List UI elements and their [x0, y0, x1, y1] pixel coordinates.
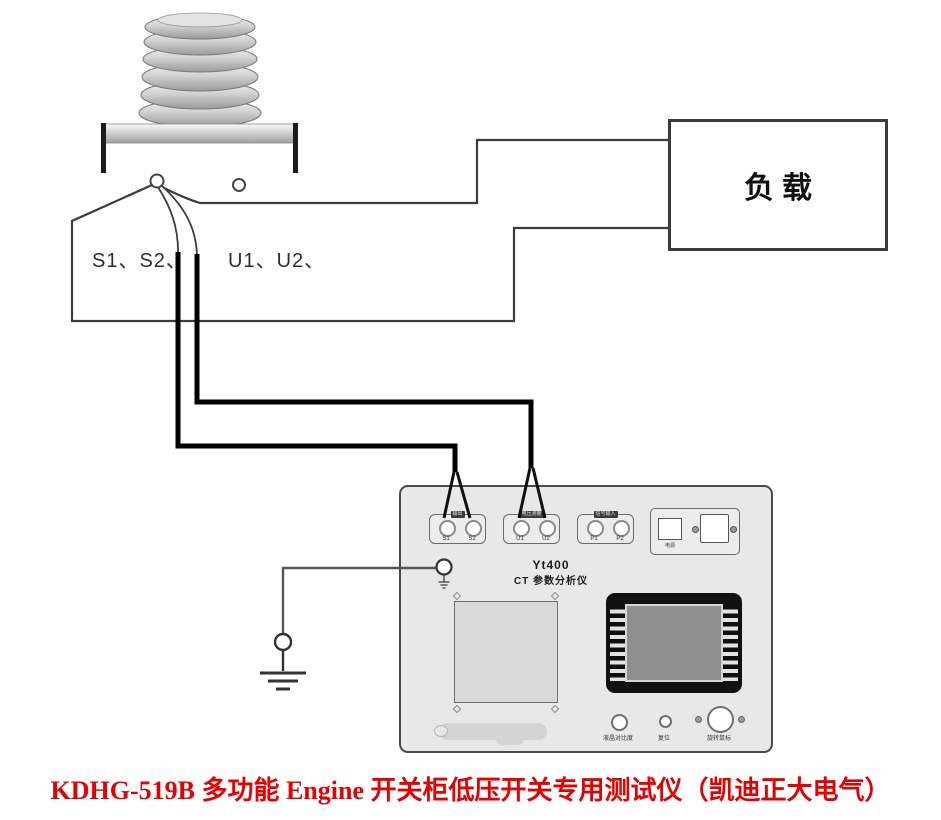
terminal-group-u: 电压测量 U1 U2 [503, 514, 560, 544]
vent-stripes-right [721, 605, 738, 681]
terminal-s1-label: S1 [437, 536, 455, 542]
measurement-wire-u [197, 254, 531, 468]
terminal-u1-label: U1 [511, 536, 529, 542]
secondary-terminals-label: S1、S2、 [92, 244, 187, 273]
contrast-knob [611, 714, 628, 731]
primary-loop-wire [72, 140, 668, 321]
ct-analyzer-panel: 输出 S1 S2 电压测量 U1 U2 信号输入 P1 P2 电源 [399, 485, 773, 753]
load-box: 负载 [668, 119, 888, 251]
power-socket-icon [700, 514, 729, 543]
terminal-p1 [587, 520, 604, 537]
keypad-area [454, 601, 558, 703]
terminal-group-p-tag: 信号输入 [593, 511, 617, 518]
erased-label-smudge [496, 733, 524, 745]
caption-text: KDHG-519B 多功能 Engine 开关柜低压开关专用测试仪（凯迪正大电气… [0, 770, 941, 807]
screw-icon [695, 716, 702, 723]
terminal-group-s: 输出 S1 S2 [429, 514, 486, 544]
lcd-display [606, 593, 742, 693]
terminal-u2-label: U2 [537, 536, 555, 542]
terminal-u1 [513, 520, 530, 537]
terminal-s2-label: S2 [463, 536, 481, 542]
instrument-model: Yt400 [461, 558, 641, 572]
bushing-insulator-icon [101, 13, 298, 173]
ground-icon [260, 673, 306, 689]
reset-button [659, 715, 672, 728]
terminal-group-p: 信号输入 P1 P2 [577, 514, 634, 544]
screw-icon [453, 705, 461, 713]
terminal-group-u-tag: 电压测量 [519, 511, 543, 518]
power-section: 电源 [650, 508, 740, 555]
screw-icon [453, 592, 461, 600]
rotary-mouse-label: 旋转鼠标 [687, 733, 751, 742]
terminal-u2 [539, 520, 556, 537]
power-switch-icon [658, 518, 682, 540]
terminal-s1 [439, 520, 456, 537]
screw-icon [551, 705, 559, 713]
terminal-p2 [613, 520, 630, 537]
power-label: 电源 [654, 542, 686, 549]
ct-terminal-stud [233, 179, 245, 191]
terminal-s2 [465, 520, 482, 537]
wiring-diagram: 负载 S1、S2、 U1、U2、 输出 S1 S2 电压测量 U1 U2 信号输… [0, 0, 941, 820]
screw-icon [692, 526, 699, 533]
instrument-title: CT 参数分析仪 [461, 572, 641, 587]
screw-icon [738, 716, 745, 723]
voltage-terminals-label: U1、U2、 [228, 244, 325, 273]
screw-icon [730, 526, 737, 533]
lcd-screen [625, 604, 723, 682]
contrast-label: 液晶对比度 [586, 733, 650, 742]
screw-icon [551, 592, 559, 600]
rotary-mouse-knob [707, 706, 734, 733]
erased-label-smudge [434, 725, 448, 737]
ct-terminal-stud [151, 175, 164, 188]
terminal-group-s-tag: 输出 [450, 511, 464, 518]
reset-label: 复位 [644, 733, 684, 742]
measurement-wire-s [178, 252, 455, 472]
terminal-p1-label: P1 [585, 536, 603, 542]
terminal-p2-label: P2 [611, 536, 629, 542]
erased-label-smudge [439, 723, 547, 740]
load-label: 负载 [736, 163, 820, 207]
